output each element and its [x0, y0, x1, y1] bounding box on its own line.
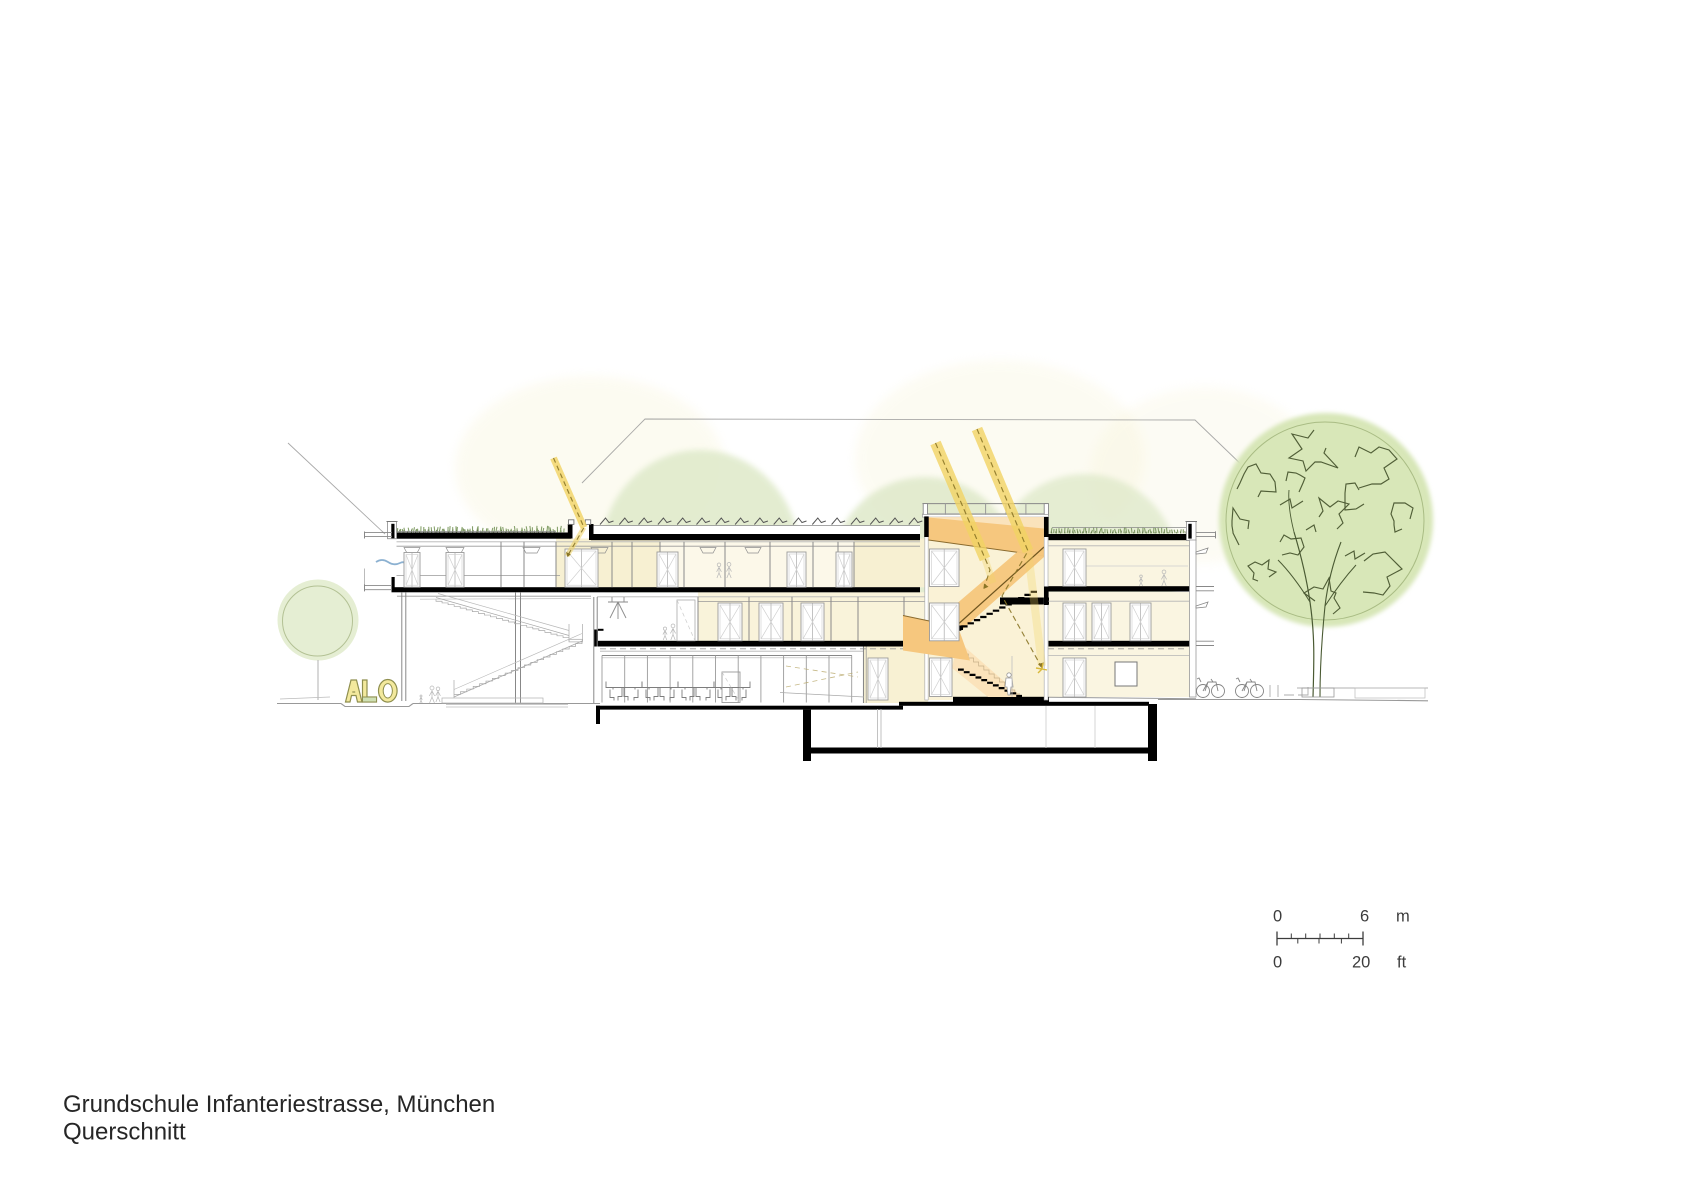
svg-text:20: 20: [1352, 954, 1370, 972]
svg-text:Grundschule Infanteriestrasse,: Grundschule Infanteriestrasse, München: [63, 1091, 495, 1118]
svg-text:6: 6: [1360, 908, 1369, 926]
svg-text:m: m: [1396, 908, 1410, 926]
svg-text:Querschnitt: Querschnitt: [63, 1119, 186, 1146]
svg-text:ft: ft: [1397, 954, 1407, 972]
svg-text:0: 0: [1273, 908, 1282, 926]
svg-text:0: 0: [1273, 954, 1282, 972]
